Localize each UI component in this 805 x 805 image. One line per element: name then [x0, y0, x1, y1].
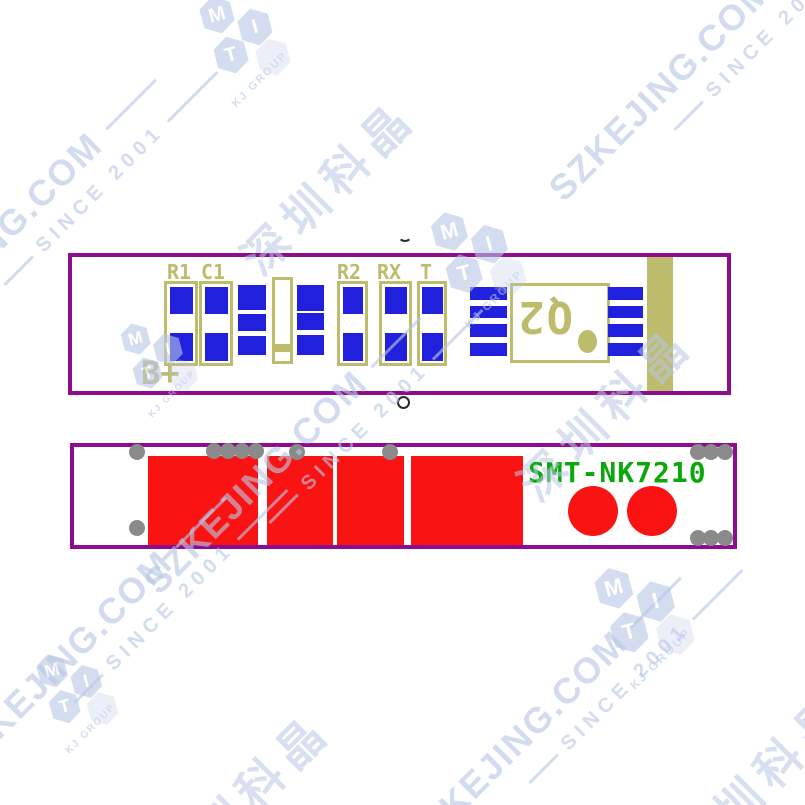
- copper-pour: [411, 456, 523, 545]
- smd-pad: [608, 324, 643, 337]
- copper-pour: [267, 456, 333, 545]
- smd-pad: [385, 287, 407, 314]
- smd-pad: [608, 306, 643, 318]
- smd-pad: [238, 314, 266, 331]
- via-hole: [717, 530, 733, 546]
- logo-cluster: MITKJ GROUP: [198, 0, 298, 92]
- smd-pad: [170, 333, 193, 361]
- smd-pad: [385, 333, 407, 361]
- smd-pad: [422, 287, 443, 314]
- logo-hexagon-t: T: [210, 32, 253, 78]
- copper-strip: [647, 257, 673, 391]
- smd-pad: [205, 287, 228, 314]
- round-pad: [627, 486, 677, 536]
- smd-pad: [422, 333, 443, 361]
- watermark-since-text: SINCE 2001: [666, 0, 805, 138]
- logo-hexagon-i: I: [632, 576, 679, 626]
- watermark-brand-text: SZKEJING.COM: [396, 564, 694, 805]
- smd-pad: [470, 306, 507, 318]
- watermark-brand-block: SZKEJING.COMSINCE 2001: [396, 564, 715, 805]
- smd-pad: [238, 285, 266, 310]
- fiducial-arc-marker: [398, 229, 412, 242]
- logo-hexagon-ghost: [252, 34, 295, 80]
- smd-pad: [470, 343, 507, 356]
- smd-pad: [470, 324, 507, 337]
- logo-cluster: MITKJ GROUP: [35, 650, 125, 740]
- logo-caption: KJ GROUP: [628, 609, 711, 692]
- smd-pad: [170, 287, 193, 314]
- fiducial-circle-marker: [397, 396, 410, 409]
- diode-band: [272, 344, 293, 352]
- logo-hexagon-m: M: [590, 563, 637, 613]
- logo-hexagon-i: I: [234, 4, 277, 50]
- smd-pad: [297, 335, 324, 355]
- copper-pour: [148, 456, 258, 545]
- watermark-since-text: SINCE 2001: [521, 598, 714, 791]
- smd-pad: [608, 287, 643, 300]
- smd-pad: [470, 287, 507, 300]
- logo-hexagon-m: M: [427, 208, 472, 256]
- via-hole: [382, 444, 398, 460]
- via-hole: [717, 444, 733, 460]
- smd-pad: [343, 287, 363, 314]
- smd-pad: [297, 285, 324, 311]
- via-hole: [129, 520, 145, 536]
- via-hole: [129, 444, 145, 460]
- smd-pad: [608, 343, 643, 356]
- round-pad: [568, 486, 618, 536]
- logo-hexagon-t: T: [606, 607, 653, 657]
- logo-cluster: MITKJ GROUP: [593, 563, 703, 673]
- smd-pad: [343, 333, 363, 361]
- smd-pad: [205, 333, 228, 361]
- via-hole: [289, 444, 305, 460]
- via-hole: [248, 443, 264, 459]
- model-number-label: SMT-NK7210: [528, 456, 707, 489]
- watermark-brand-block: SZKEJING.COMSINCE 2001: [541, 0, 805, 230]
- watermark-chinese: 深圳科晶: [657, 675, 805, 805]
- smd-pad: [297, 313, 324, 330]
- watermark-brand-text: SZKEJING.COM: [541, 0, 805, 209]
- pcb-product-image: R1 C1 R2 RX T B+ Q2 SMT-NK7210 SZKEJING.…: [0, 0, 805, 805]
- logo-hexagon-ghost: [83, 688, 121, 729]
- component-outline: [510, 283, 610, 363]
- logo-caption: KJ GROUP: [64, 688, 132, 756]
- logo-caption: KJ GROUP: [230, 34, 306, 110]
- copper-pour: [337, 456, 404, 545]
- smd-pad: [238, 336, 266, 355]
- logo-hexagon-m: M: [33, 650, 71, 691]
- q2-pin1-dot: [578, 330, 597, 353]
- watermark-chinese: 深圳科晶: [139, 695, 344, 805]
- logo-hexagon-t: T: [45, 686, 83, 727]
- logo-hexagon-m: M: [196, 0, 239, 38]
- logo-hexagon-ghost: [652, 609, 699, 659]
- logo-hexagon-i: I: [67, 661, 105, 702]
